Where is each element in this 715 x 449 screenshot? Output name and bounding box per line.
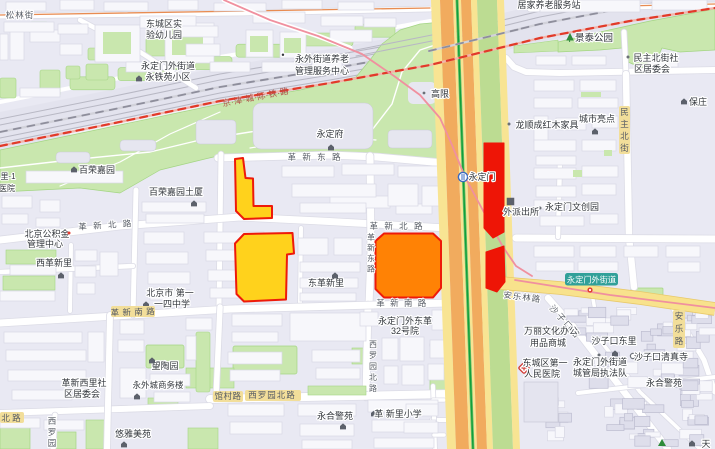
- svg-text:革 新 东 路: 革 新 东 路: [287, 152, 342, 162]
- svg-text:北京公积金: 北京公积金: [24, 228, 69, 239]
- svg-text:民: 民: [620, 107, 629, 117]
- svg-text:永外城商务楼: 永外城商务楼: [132, 380, 184, 390]
- svg-text:管理服务中心: 管理服务中心: [295, 65, 349, 76]
- svg-text:一四中学: 一四中学: [154, 298, 190, 309]
- svg-text:永定门外街道: 永定门外街道: [573, 356, 627, 367]
- svg-text:永定门文创园: 永定门文创园: [545, 201, 599, 212]
- svg-text:永定门外街道: 永定门外街道: [141, 60, 195, 71]
- svg-text:百荣嘉园: 百荣嘉园: [79, 164, 115, 175]
- svg-text:北: 北: [620, 131, 629, 141]
- svg-text:革 新 南 路: 革 新 南 路: [376, 298, 428, 308]
- svg-text:32号院: 32号院: [391, 325, 419, 336]
- svg-text:主: 主: [620, 119, 629, 129]
- svg-text:路: 路: [369, 383, 377, 393]
- svg-text:永定门外东革: 永定门外东革: [378, 315, 432, 326]
- svg-text:东: 东: [367, 253, 375, 263]
- svg-text:永定门: 永定门: [468, 171, 495, 182]
- svg-text:革 新 南 路: 革 新 南 路: [110, 306, 155, 318]
- svg-text:沙子口清真寺: 沙子口清真寺: [634, 351, 688, 362]
- svg-text:永合警苑: 永合警苑: [317, 410, 353, 421]
- svg-text:悠雅美苑: 悠雅美苑: [115, 428, 151, 439]
- svg-text:西革新里: 西革新里: [36, 257, 72, 268]
- svg-text:西: 西: [48, 416, 57, 426]
- svg-text:罗: 罗: [48, 427, 57, 437]
- svg-text:松林街: 松林街: [6, 10, 35, 20]
- svg-text:医院: 医院: [0, 183, 15, 193]
- svg-text:园: 园: [369, 362, 377, 371]
- svg-text:龙顺成红木家具: 龙顺成红木家具: [515, 119, 578, 130]
- svg-text:景泰公园: 景泰公园: [575, 32, 613, 44]
- svg-text:用品商城: 用品商城: [530, 337, 566, 348]
- svg-text:乐: 乐: [675, 324, 684, 334]
- svg-text:北京市 第一: 北京市 第一: [146, 287, 194, 298]
- svg-text:万丽文化办公: 万丽文化办公: [524, 325, 578, 336]
- svg-text:保庄: 保庄: [689, 96, 707, 107]
- svg-text:人民医院: 人民医院: [524, 368, 560, 379]
- svg-text:西: 西: [369, 340, 377, 349]
- svg-text:革 新 北 路: 革 新 北 路: [369, 221, 424, 231]
- svg-text:革新西里社: 革新西里社: [61, 377, 106, 388]
- svg-text:北: 北: [369, 373, 377, 382]
- svg-text:永合警苑: 永合警苑: [646, 377, 682, 388]
- svg-text:民主北街社: 民主北街社: [633, 52, 678, 63]
- svg-text:东城区第一: 东城区第一: [522, 357, 567, 368]
- svg-text:革: 革: [367, 232, 375, 242]
- svg-text:里-1: 里-1: [0, 172, 16, 181]
- svg-text:罗: 罗: [369, 351, 377, 360]
- svg-text:沙子口东里: 沙子口东里: [591, 335, 636, 346]
- svg-text:安: 安: [675, 311, 684, 321]
- svg-text:外派出所: 外派出所: [503, 206, 539, 217]
- svg-text:馆村路: 馆村路: [214, 391, 241, 401]
- svg-text:验幼儿园: 验幼儿园: [146, 29, 182, 40]
- svg-text:革 新里小学: 革 新里小学: [374, 408, 422, 419]
- svg-text:园: 园: [48, 438, 57, 448]
- svg-text:高限: 高限: [431, 88, 449, 99]
- svg-text:管理中心: 管理中心: [27, 238, 63, 249]
- svg-text:东城区实: 东城区实: [146, 18, 182, 29]
- svg-text:路: 路: [367, 264, 375, 274]
- svg-text:永定门外街道: 永定门外街道: [567, 275, 616, 285]
- svg-text:永外街道养老: 永外街道养老: [295, 53, 349, 64]
- svg-text:百荣嘉园土厦: 百荣嘉园土厦: [149, 186, 203, 197]
- svg-text:•: •: [281, 50, 284, 60]
- svg-text:城管局执法队: 城管局执法队: [573, 367, 627, 378]
- svg-text:居家养老服务站: 居家养老服务站: [517, 0, 580, 10]
- svg-text:东革新里: 东革新里: [308, 277, 344, 288]
- svg-text:北 路: 北 路: [1, 413, 21, 423]
- svg-text:街: 街: [620, 143, 629, 153]
- svg-text:区居委会: 区居委会: [64, 388, 100, 399]
- svg-text:路: 路: [675, 336, 684, 346]
- svg-text:望陶园: 望陶园: [151, 360, 178, 371]
- svg-text:城市亮点: 城市亮点: [579, 113, 615, 124]
- svg-text:永铁苑小区: 永铁苑小区: [145, 71, 190, 82]
- svg-text:天: 天: [701, 439, 710, 449]
- svg-text:永定府: 永定府: [316, 128, 343, 139]
- svg-text:区居委会: 区居委会: [634, 63, 670, 74]
- svg-text:西罗园北路: 西罗园北路: [248, 390, 296, 400]
- svg-text:新: 新: [367, 243, 375, 253]
